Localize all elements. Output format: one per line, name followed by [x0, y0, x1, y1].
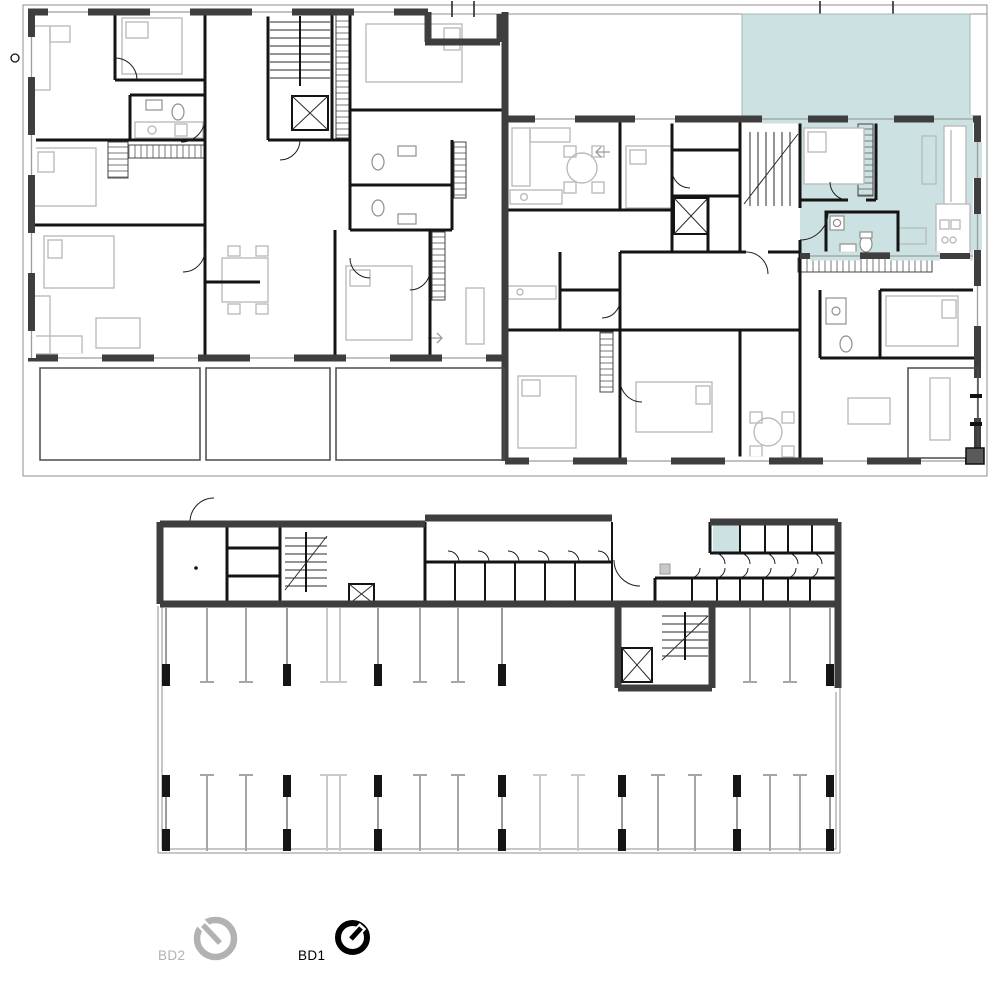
bed	[518, 376, 576, 448]
stairs	[750, 132, 790, 206]
toilet	[840, 336, 852, 352]
corner-column	[966, 448, 984, 464]
bd2-button[interactable]: BD2	[158, 920, 234, 963]
bd1-button[interactable]: BD1	[298, 923, 367, 963]
ground-floor-plan	[158, 498, 840, 853]
kitchen-counter	[510, 190, 562, 204]
bd2-compass-icon	[197, 920, 234, 957]
parking-stalls	[166, 608, 830, 851]
bed	[346, 266, 412, 340]
sofa	[944, 126, 966, 206]
table	[96, 318, 140, 348]
bed	[44, 236, 114, 288]
legend: BD2 BD1	[158, 920, 367, 963]
survey-marker-icon	[11, 54, 19, 62]
ground-stair-core	[618, 604, 712, 688]
kitchen-counter	[508, 286, 556, 299]
bd1-label: BD1	[298, 948, 325, 963]
terraces	[40, 368, 984, 464]
bd1-compass-icon	[338, 923, 367, 952]
toilet	[372, 154, 384, 170]
bd2-label: BD2	[158, 948, 185, 963]
room-marker	[194, 566, 198, 570]
upper-floor-plan	[11, 1, 987, 476]
bed	[366, 24, 462, 82]
bed	[636, 382, 712, 432]
bed	[886, 296, 958, 346]
floor-plan-canvas: BD2 BD1	[0, 0, 1000, 1000]
ground-interior	[190, 498, 838, 604]
sofa	[512, 128, 530, 186]
highlighted-storage-cell[interactable]	[713, 524, 739, 552]
highlighted-terrace[interactable]	[742, 14, 970, 120]
dining-table	[222, 258, 268, 302]
kitchen-counter	[135, 122, 203, 138]
dining-table	[754, 418, 782, 446]
bed	[804, 128, 864, 184]
bed	[626, 146, 672, 208]
bed	[34, 148, 96, 206]
table	[848, 398, 890, 424]
sofa	[466, 288, 484, 344]
sink	[146, 100, 162, 110]
cabinet	[660, 564, 670, 574]
toilet	[372, 200, 384, 216]
entry-arrow-icon	[596, 147, 610, 157]
sofa	[930, 378, 950, 440]
